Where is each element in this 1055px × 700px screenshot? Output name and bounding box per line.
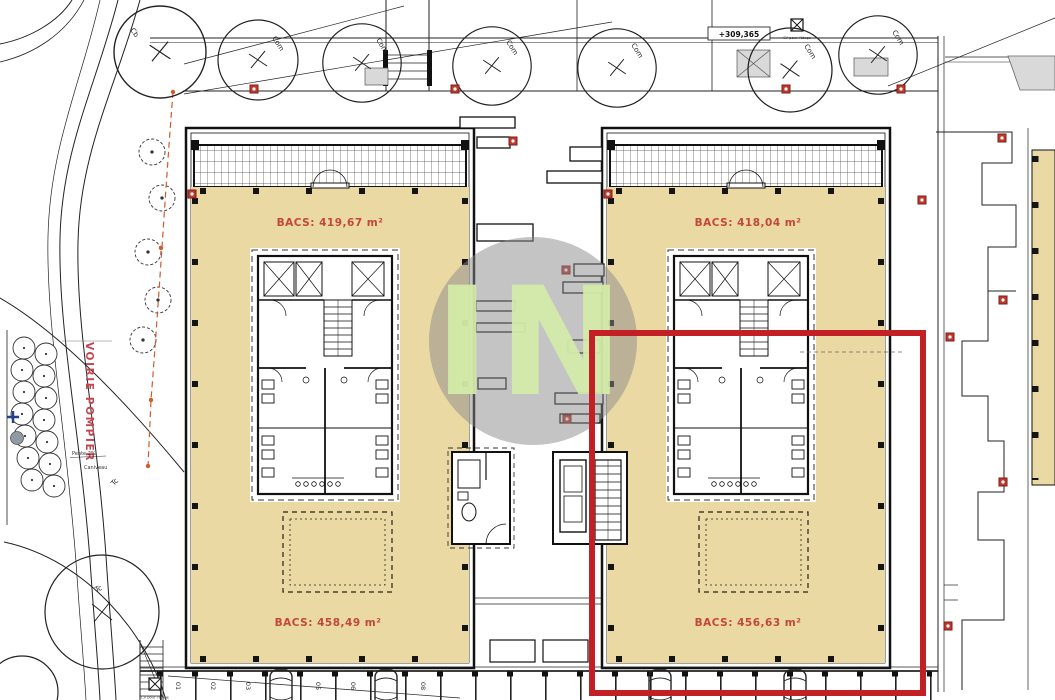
parking-number: 01 — [174, 682, 182, 690]
cv-box-label: CV pour l'étage — [141, 696, 170, 700]
manhole-icon — [11, 432, 24, 445]
parking-number: 02 — [209, 682, 217, 690]
tree-label-com: Com — [504, 39, 519, 57]
landscape-left: VOIRIE POMPIER Pente 2% Caniveau Tc Tc C… — [0, 0, 184, 700]
bacs-area-label: BACS: 419,67 m² — [277, 217, 384, 229]
parking-number: 03 — [244, 682, 252, 690]
building-left: BACS: 419,67 m² BACS: 458,49 m² — [186, 128, 474, 668]
parking-number: 08 — [419, 682, 427, 690]
shrub-cluster-icons — [11, 337, 65, 497]
tree-label-cb: Cb — [128, 27, 140, 40]
building-right: BACS: 418,04 m² BACS: 456,63 m² — [602, 128, 890, 668]
sapling-icons — [130, 139, 175, 353]
bacs-area-label: BACS: 456,63 m² — [695, 617, 802, 629]
limit-line — [146, 90, 175, 468]
parking-number: 05 — [314, 682, 322, 690]
watermark-text: IN — [434, 256, 631, 430]
car-icon — [375, 670, 397, 700]
cv-box-label: CV pour l'étage — [783, 36, 812, 40]
service-block-wc — [448, 448, 514, 548]
street-label: VOIRIE POMPIER — [83, 342, 95, 462]
bacs-area-label: BACS: 418,04 m² — [695, 217, 802, 229]
bacs-area-label: BACS: 458,49 m² — [275, 617, 382, 629]
slope-label: Pente 2% — [72, 451, 96, 457]
parking-number: 06 — [349, 682, 357, 690]
cv-box-icon — [149, 678, 161, 690]
elevation-hatch — [737, 50, 770, 77]
tree-label-com: Com — [629, 42, 644, 60]
tree-label-tc: Tc — [109, 477, 120, 488]
gutter-label: Caniveau — [84, 465, 107, 471]
watermark: IN — [429, 237, 637, 445]
floor-plan-canvas: VOIRIE POMPIER Pente 2% Caniveau Tc Tc C… — [0, 0, 1055, 700]
elevation-label: +309,365 — [719, 30, 759, 39]
tree-label-com: Com — [802, 43, 817, 61]
top-strip: +309,365 CV pour l'étage Com Com Com Com… — [114, 0, 1055, 112]
footpath-steps — [383, 0, 432, 91]
east-block — [936, 36, 1055, 692]
tree-label-tc: Tc — [93, 584, 103, 594]
